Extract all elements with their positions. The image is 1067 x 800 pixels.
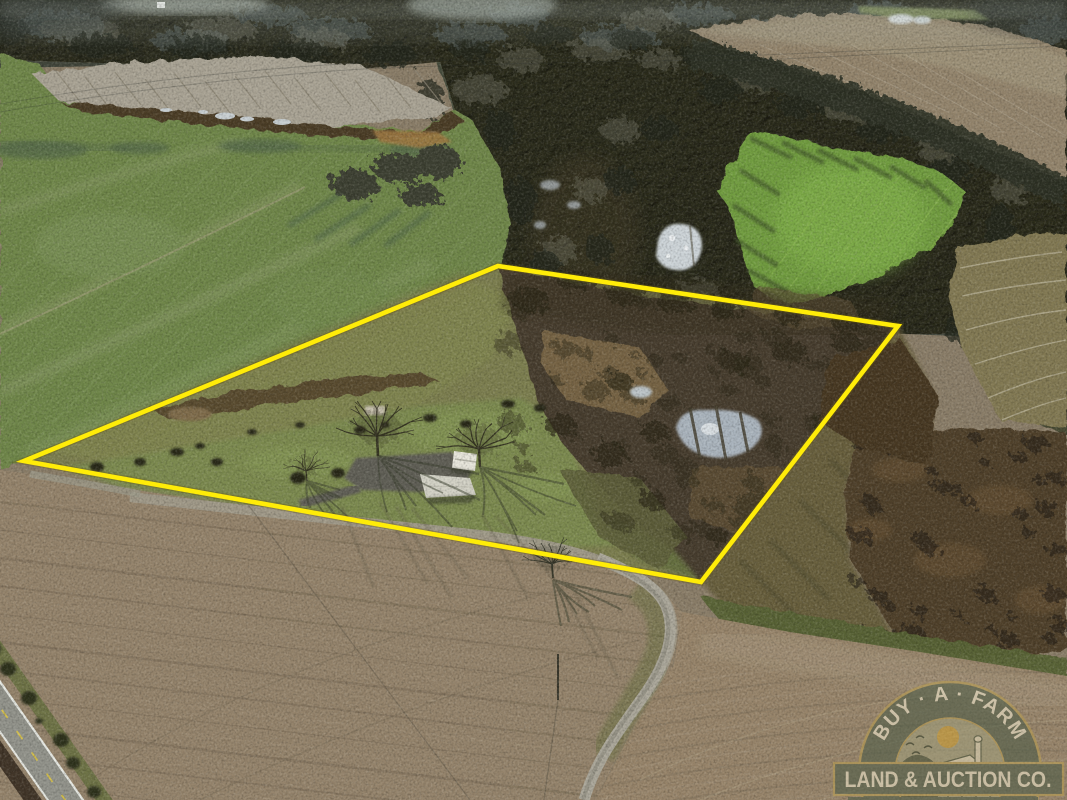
- svg-text:LAND & AUCTION CO.: LAND & AUCTION CO.: [845, 767, 1052, 792]
